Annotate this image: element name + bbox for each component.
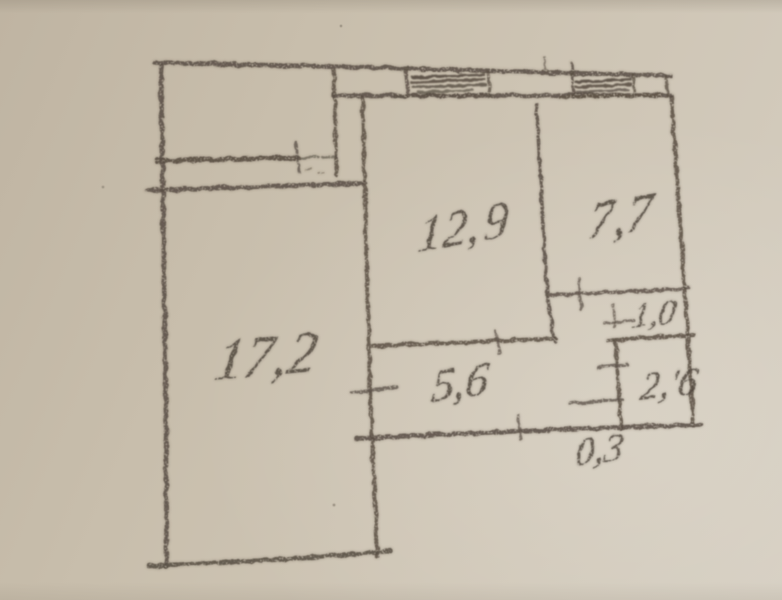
svg-text:0,3: 0,3 xyxy=(573,424,626,475)
svg-text:17,2: 17,2 xyxy=(211,319,322,393)
svg-text:2,′6: 2,′6 xyxy=(638,359,701,409)
svg-text:1,0: 1,0 xyxy=(630,290,679,336)
svg-text:5,6: 5,6 xyxy=(429,353,492,414)
svg-text:12, 9: 12, 9 xyxy=(416,191,510,264)
svg-text:7,7: 7,7 xyxy=(586,182,658,251)
